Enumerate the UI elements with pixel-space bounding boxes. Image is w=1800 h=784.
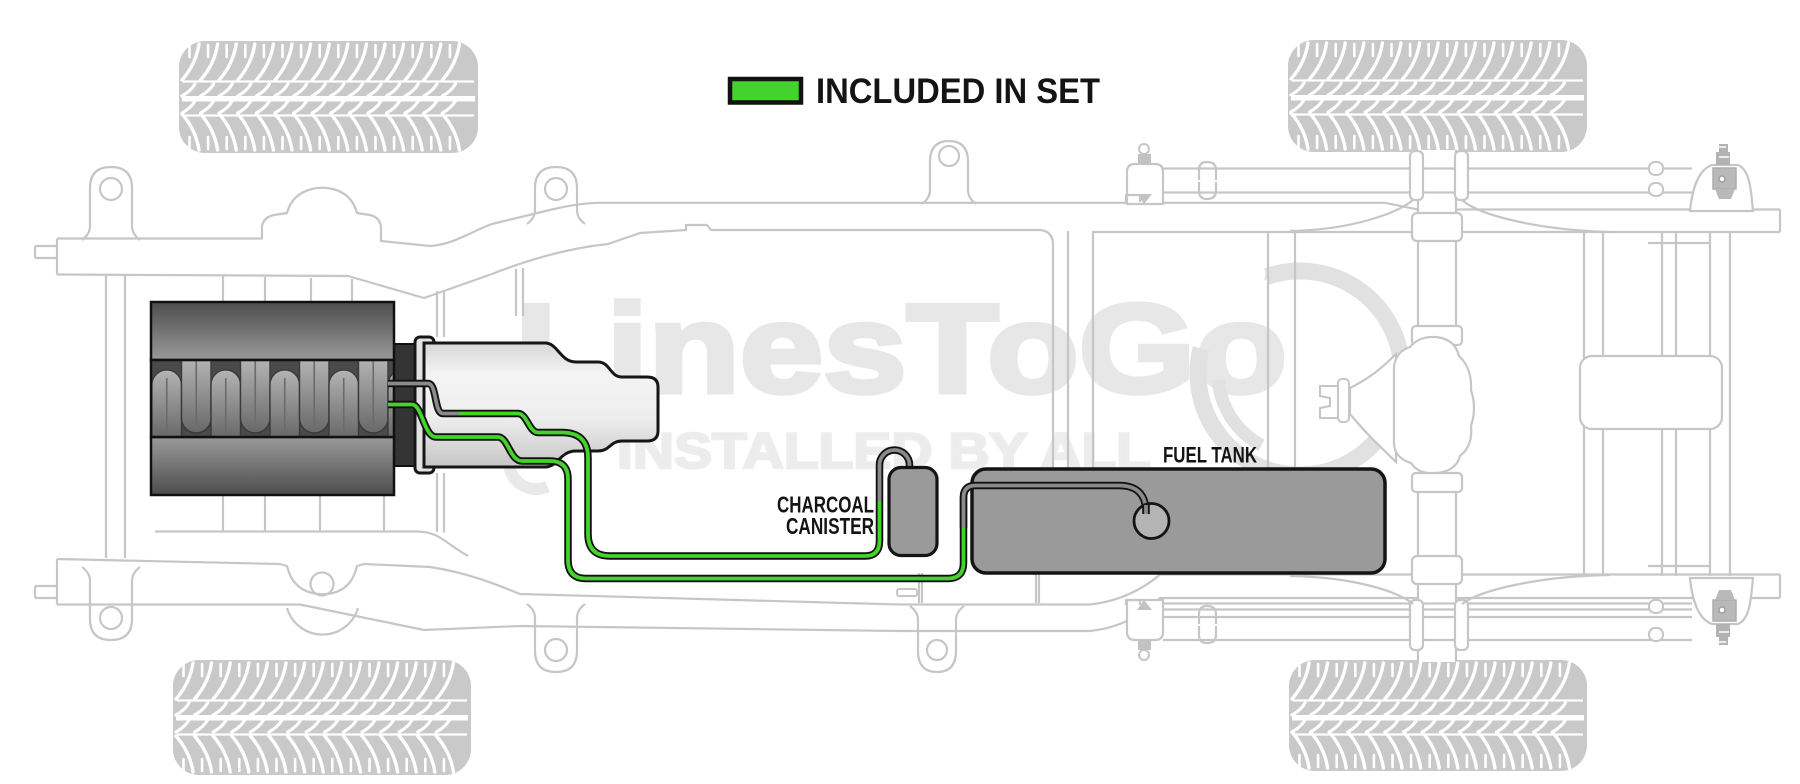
svg-text:INCLUDED IN SET: INCLUDED IN SET — [816, 72, 1100, 111]
svg-text:CANISTER: CANISTER — [786, 513, 874, 539]
svg-text:FUEL TANK: FUEL TANK — [1163, 443, 1257, 468]
